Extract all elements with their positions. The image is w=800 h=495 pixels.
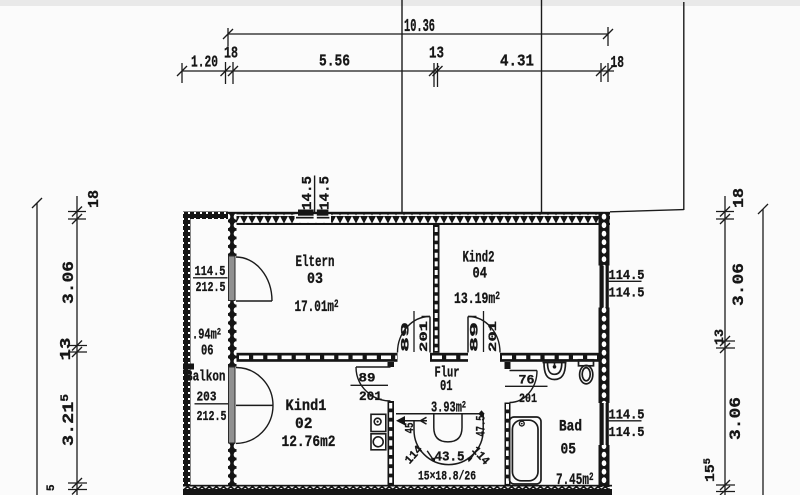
svg-text:17.01m2: 17.01m2 (295, 298, 339, 316)
svg-text:89: 89 (470, 322, 482, 352)
svg-text:04: 04 (473, 265, 488, 283)
svg-text:3.06: 3.06 (60, 261, 78, 304)
svg-text:114.5: 114.5 (609, 286, 645, 302)
svg-text:13: 13 (58, 338, 75, 361)
svg-text:06: 06 (201, 343, 214, 360)
svg-text:89: 89 (401, 322, 413, 352)
svg-text:Kind1: Kind1 (286, 397, 327, 415)
svg-text:13: 13 (429, 45, 444, 64)
svg-text:114.5: 114.5 (609, 425, 645, 441)
svg-text:14.5: 14.5 (318, 176, 334, 210)
svg-text:7.45m2: 7.45m2 (556, 471, 594, 489)
svg-text:201: 201 (419, 320, 431, 352)
svg-text:43.5: 43.5 (435, 450, 465, 466)
svg-text:03: 03 (307, 270, 323, 288)
svg-text:14.5: 14.5 (300, 176, 316, 210)
svg-text:89: 89 (359, 371, 376, 386)
svg-text:18: 18 (86, 190, 103, 208)
svg-text:1.20: 1.20 (191, 54, 218, 73)
svg-text:201: 201 (488, 320, 500, 352)
svg-text:201: 201 (359, 389, 382, 404)
svg-text:01: 01 (440, 378, 453, 395)
svg-text:4.31: 4.31 (500, 53, 534, 72)
svg-text:212.5: 212.5 (196, 280, 226, 296)
svg-text:47.5: 47.5 (475, 416, 489, 437)
svg-text:05: 05 (561, 441, 577, 459)
svg-text:02: 02 (295, 415, 313, 433)
svg-text:Bad: Bad (559, 418, 582, 436)
svg-text:5: 5 (46, 484, 58, 491)
svg-text:76: 76 (519, 373, 535, 388)
svg-text:13: 13 (712, 329, 727, 345)
svg-text:18: 18 (224, 45, 238, 64)
svg-text:Eltern: Eltern (296, 253, 335, 271)
svg-text:3.06: 3.06 (727, 397, 745, 440)
svg-text:10.36: 10.36 (404, 17, 435, 37)
svg-text:.94m2: .94m2 (192, 327, 221, 344)
svg-text:18: 18 (731, 188, 748, 208)
svg-text:45: 45 (404, 422, 417, 433)
svg-text:Balkon: Balkon (186, 369, 226, 386)
svg-text:212.5: 212.5 (197, 409, 227, 425)
svg-text:3.06: 3.06 (730, 263, 748, 306)
svg-text:12.76m2: 12.76m2 (282, 433, 336, 451)
svg-text:13.19m2: 13.19m2 (454, 290, 500, 308)
svg-text:18: 18 (611, 54, 625, 73)
svg-text:5.56: 5.56 (319, 53, 350, 72)
svg-text:15×18.8/26: 15×18.8/26 (418, 469, 476, 484)
svg-text:201: 201 (519, 391, 537, 406)
